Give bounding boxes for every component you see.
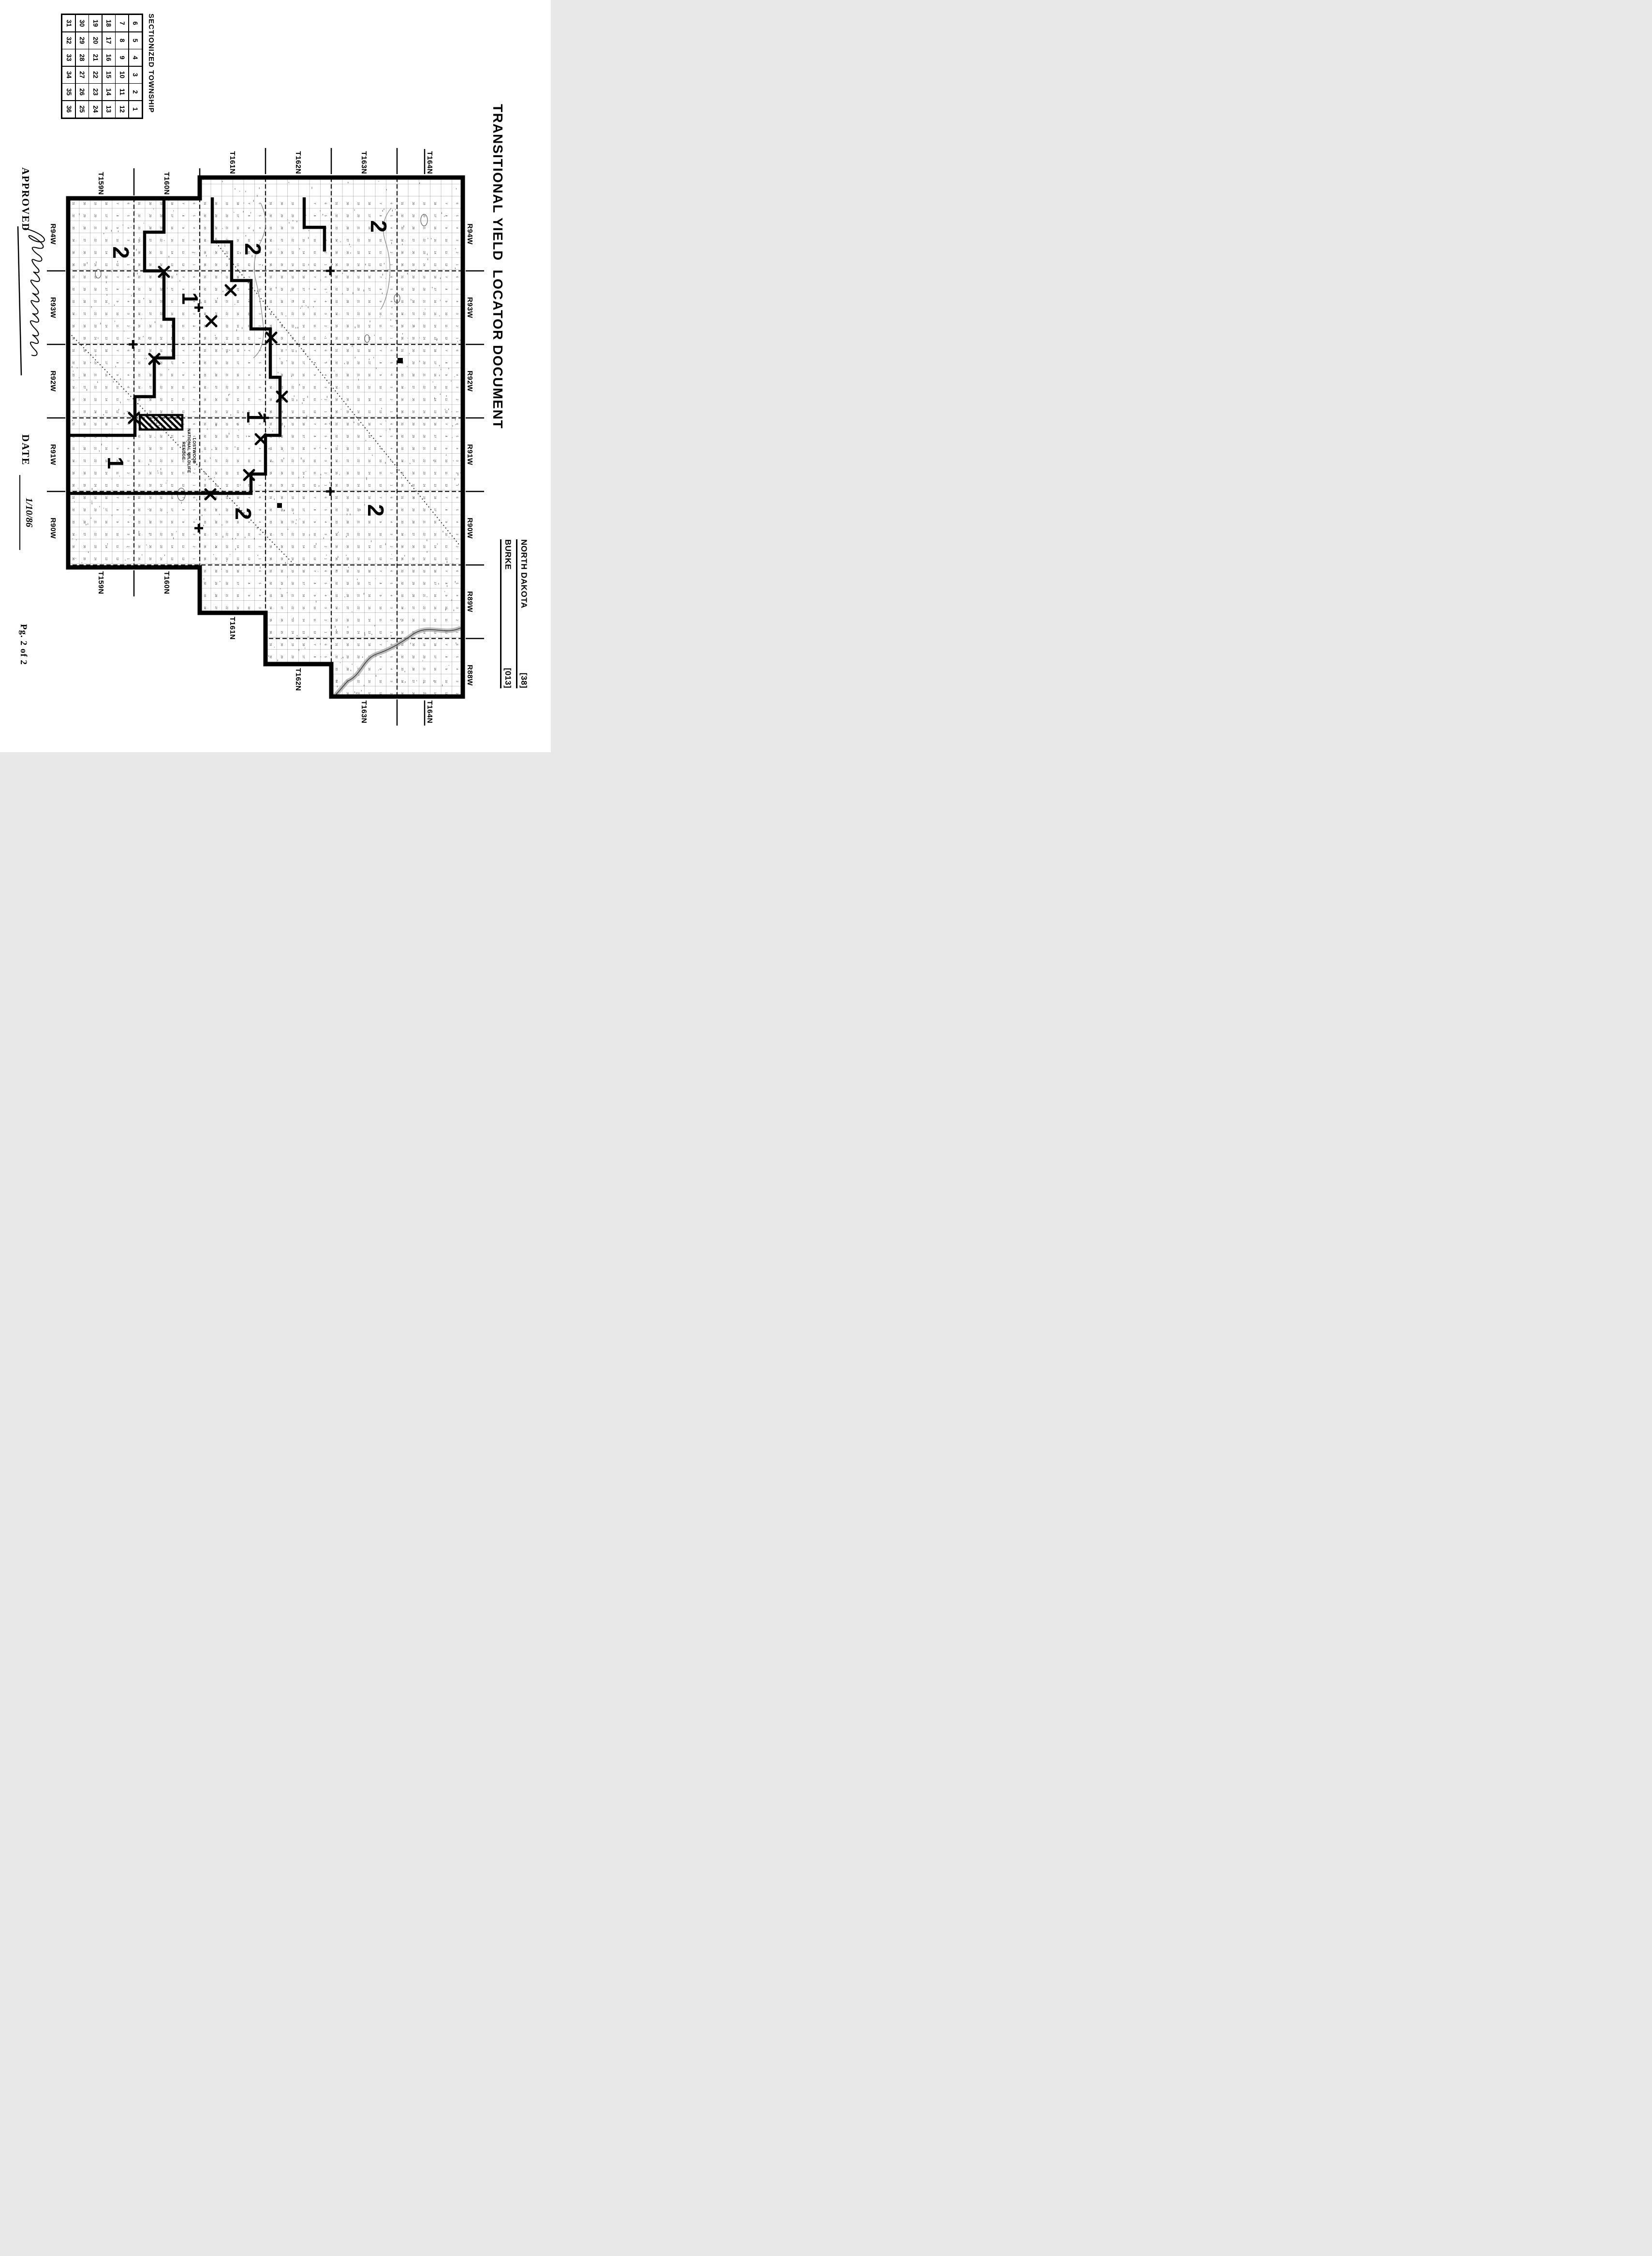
svg-text:31: 31 xyxy=(269,276,272,279)
svg-text:12: 12 xyxy=(379,263,382,266)
svg-text:36: 36 xyxy=(400,410,403,413)
svg-text:34: 34 xyxy=(335,386,338,389)
svg-text:20: 20 xyxy=(423,582,426,585)
svg-text:17: 17 xyxy=(302,435,305,438)
svg-text:27: 27 xyxy=(214,607,217,609)
svg-text:5: 5 xyxy=(127,288,130,290)
svg-text:17: 17 xyxy=(302,361,305,364)
svg-text:12: 12 xyxy=(181,337,184,340)
svg-text:28: 28 xyxy=(280,594,283,597)
svg-text:20: 20 xyxy=(225,582,228,585)
svg-text:16: 16 xyxy=(104,447,107,450)
svg-text:26: 26 xyxy=(346,251,349,254)
svg-text:32: 32 xyxy=(137,361,140,364)
svg-text:21: 21 xyxy=(423,668,426,670)
svg-text:30: 30 xyxy=(346,202,349,205)
svg-text:36: 36 xyxy=(269,410,272,413)
svg-text:4: 4 xyxy=(127,374,130,376)
svg-text:11: 11 xyxy=(444,398,447,401)
svg-text:21: 21 xyxy=(423,373,426,376)
svg-text:31: 31 xyxy=(269,202,272,205)
svg-text:4: 4 xyxy=(127,448,130,449)
svg-text:24: 24 xyxy=(225,263,228,266)
svg-text:18: 18 xyxy=(302,643,305,646)
svg-text:14: 14 xyxy=(433,472,436,475)
svg-text:8: 8 xyxy=(116,509,118,510)
svg-text:34: 34 xyxy=(72,312,74,315)
svg-text:17: 17 xyxy=(170,288,173,291)
svg-text:34: 34 xyxy=(269,386,272,389)
svg-text:5: 5 xyxy=(390,215,393,216)
svg-text:28: 28 xyxy=(148,520,151,523)
svg-text:1: 1 xyxy=(456,411,458,413)
svg-text:22: 22 xyxy=(357,533,360,536)
svg-text:27: 27 xyxy=(280,312,283,315)
svg-text:26: 26 xyxy=(214,251,217,254)
svg-text:6: 6 xyxy=(456,203,458,204)
svg-text:13: 13 xyxy=(433,337,436,340)
svg-text:22: 22 xyxy=(225,386,228,389)
svg-text:12: 12 xyxy=(379,410,382,413)
svg-text:27: 27 xyxy=(83,239,86,242)
svg-text:13: 13 xyxy=(302,484,305,487)
svg-text:23: 23 xyxy=(225,325,228,327)
svg-text:23: 23 xyxy=(94,251,97,254)
svg-text:27: 27 xyxy=(83,460,86,462)
svg-text:31: 31 xyxy=(203,349,206,352)
svg-text:18: 18 xyxy=(236,202,239,205)
svg-text:13: 13 xyxy=(433,410,436,413)
svg-text:20: 20 xyxy=(225,214,228,217)
township-label-right: T159N xyxy=(97,571,105,594)
svg-text:4: 4 xyxy=(324,301,327,302)
svg-text:25: 25 xyxy=(83,263,86,266)
svg-text:34: 34 xyxy=(269,533,272,536)
svg-text:35: 35 xyxy=(137,251,140,254)
svg-text:28: 28 xyxy=(83,300,86,303)
svg-text:22: 22 xyxy=(357,239,360,242)
svg-text:3: 3 xyxy=(324,460,327,461)
svg-text:11: 11 xyxy=(313,472,316,475)
svg-text:34: 34 xyxy=(400,312,403,315)
svg-text:24: 24 xyxy=(225,410,228,413)
svg-text:20: 20 xyxy=(291,582,294,585)
svg-text:14: 14 xyxy=(302,325,305,327)
svg-text:8: 8 xyxy=(313,215,316,216)
svg-text:2: 2 xyxy=(390,693,393,694)
svg-text:35: 35 xyxy=(400,619,403,622)
svg-text:14: 14 xyxy=(302,472,305,475)
svg-text:5: 5 xyxy=(258,509,261,510)
svg-text:12: 12 xyxy=(116,484,118,487)
svg-text:16: 16 xyxy=(104,300,107,303)
svg-text:35: 35 xyxy=(335,251,338,254)
svg-text:18: 18 xyxy=(302,496,305,499)
svg-text:10: 10 xyxy=(444,386,447,389)
svg-text:24: 24 xyxy=(160,484,162,487)
svg-text:34: 34 xyxy=(269,239,272,242)
svg-text:19: 19 xyxy=(423,496,426,499)
svg-text:1: 1 xyxy=(258,485,261,486)
range-label-bottom: R91W xyxy=(49,444,57,465)
svg-text:24: 24 xyxy=(357,631,360,634)
svg-text:25: 25 xyxy=(346,263,349,266)
svg-text:30: 30 xyxy=(83,349,86,352)
svg-text:7: 7 xyxy=(313,644,316,645)
svg-text:18: 18 xyxy=(170,276,173,279)
svg-text:7: 7 xyxy=(247,203,250,204)
svg-text:34: 34 xyxy=(72,239,74,242)
svg-text:15: 15 xyxy=(104,386,107,389)
svg-text:7: 7 xyxy=(379,276,382,278)
svg-text:18: 18 xyxy=(368,643,370,646)
svg-text:19: 19 xyxy=(357,349,360,352)
svg-text:24: 24 xyxy=(160,557,162,560)
svg-text:28: 28 xyxy=(412,594,414,597)
svg-text:33: 33 xyxy=(269,226,272,229)
svg-text:8: 8 xyxy=(181,362,184,363)
svg-text:30: 30 xyxy=(280,570,283,573)
svg-text:7: 7 xyxy=(247,276,250,278)
svg-text:16: 16 xyxy=(433,226,436,229)
svg-text:18: 18 xyxy=(104,202,107,205)
svg-text:6: 6 xyxy=(456,570,458,572)
svg-text:14: 14 xyxy=(368,472,370,475)
svg-text:7: 7 xyxy=(444,497,447,498)
svg-text:7: 7 xyxy=(379,350,382,351)
svg-text:17: 17 xyxy=(433,582,436,585)
svg-text:9: 9 xyxy=(313,448,316,449)
svg-text:32: 32 xyxy=(335,435,338,438)
svg-text:32: 32 xyxy=(203,508,206,511)
svg-text:6: 6 xyxy=(456,276,458,278)
svg-text:26: 26 xyxy=(412,398,414,401)
svg-text:19: 19 xyxy=(423,276,426,279)
svg-text:31: 31 xyxy=(335,570,338,573)
svg-text:16: 16 xyxy=(368,668,370,670)
svg-text:36: 36 xyxy=(335,263,338,266)
svg-text:15: 15 xyxy=(104,239,107,242)
svg-text:17: 17 xyxy=(104,214,107,217)
svg-text:5: 5 xyxy=(324,362,327,363)
svg-text:31: 31 xyxy=(335,643,338,646)
svg-text:9: 9 xyxy=(444,668,447,670)
svg-text:35: 35 xyxy=(72,251,74,254)
svg-text:15: 15 xyxy=(368,533,370,536)
svg-text:35: 35 xyxy=(269,251,272,254)
svg-text:2: 2 xyxy=(127,399,130,400)
svg-text:30: 30 xyxy=(412,276,414,279)
svg-text:12: 12 xyxy=(444,410,447,413)
svg-text:30: 30 xyxy=(412,496,414,499)
svg-text:16: 16 xyxy=(368,520,370,523)
svg-text:18: 18 xyxy=(302,276,305,279)
svg-text:9: 9 xyxy=(181,374,184,376)
svg-text:36: 36 xyxy=(269,263,272,266)
svg-text:14: 14 xyxy=(368,545,370,548)
svg-text:31: 31 xyxy=(72,423,74,426)
township-label-left: T162N xyxy=(294,151,302,174)
svg-text:12: 12 xyxy=(444,557,447,560)
svg-text:32: 32 xyxy=(335,214,338,217)
svg-text:25: 25 xyxy=(412,410,414,413)
svg-text:24: 24 xyxy=(357,484,360,487)
svg-text:5: 5 xyxy=(390,509,393,510)
svg-text:26: 26 xyxy=(148,545,151,548)
svg-text:21: 21 xyxy=(357,520,360,523)
svg-text:8: 8 xyxy=(116,215,118,216)
svg-text:23: 23 xyxy=(357,545,360,548)
svg-text:10: 10 xyxy=(181,386,184,389)
svg-text:9: 9 xyxy=(116,374,118,376)
svg-text:20: 20 xyxy=(291,508,294,511)
svg-text:5: 5 xyxy=(456,215,458,216)
svg-text:29: 29 xyxy=(214,361,217,364)
svg-text:13: 13 xyxy=(236,410,239,413)
svg-text:13: 13 xyxy=(236,263,239,266)
svg-text:19: 19 xyxy=(423,643,426,646)
svg-text:14: 14 xyxy=(368,619,370,622)
svg-text:9: 9 xyxy=(313,301,316,302)
svg-text:24: 24 xyxy=(160,337,162,340)
svg-text:25: 25 xyxy=(280,484,283,487)
svg-text:35: 35 xyxy=(269,619,272,622)
svg-text:7: 7 xyxy=(116,423,118,425)
svg-text:33: 33 xyxy=(203,447,206,450)
svg-text:19: 19 xyxy=(357,496,360,499)
svg-text:3: 3 xyxy=(456,460,458,461)
svg-text:27: 27 xyxy=(214,533,217,536)
svg-text:26: 26 xyxy=(412,619,414,622)
svg-text:10: 10 xyxy=(116,386,118,389)
svg-text:9: 9 xyxy=(313,374,316,376)
svg-text:7: 7 xyxy=(379,570,382,572)
svg-text:8: 8 xyxy=(116,362,118,363)
svg-text:5: 5 xyxy=(258,582,261,584)
svg-text:2: 2 xyxy=(324,399,327,400)
svg-text:12: 12 xyxy=(313,631,316,634)
svg-text:10: 10 xyxy=(181,312,184,315)
svg-text:13: 13 xyxy=(302,631,305,634)
svg-text:15: 15 xyxy=(236,386,239,389)
svg-text:23: 23 xyxy=(225,398,228,401)
svg-text:32: 32 xyxy=(400,582,403,585)
svg-text:4: 4 xyxy=(456,374,458,376)
svg-text:15: 15 xyxy=(433,239,436,242)
svg-text:2: 2 xyxy=(390,546,393,547)
svg-text:8: 8 xyxy=(247,215,250,216)
svg-text:19: 19 xyxy=(160,349,162,352)
svg-text:30: 30 xyxy=(346,276,349,279)
svg-text:29: 29 xyxy=(412,435,414,438)
svg-text:12: 12 xyxy=(444,484,447,487)
svg-text:21: 21 xyxy=(94,373,97,376)
svg-text:4: 4 xyxy=(258,448,261,449)
svg-text:26: 26 xyxy=(412,251,414,254)
svg-text:29: 29 xyxy=(346,582,349,585)
svg-text:13: 13 xyxy=(236,484,239,487)
svg-text:15: 15 xyxy=(302,312,305,315)
svg-text:11: 11 xyxy=(379,251,382,254)
svg-text:21: 21 xyxy=(291,226,294,229)
svg-text:25: 25 xyxy=(346,484,349,487)
svg-text:9: 9 xyxy=(313,521,316,523)
svg-text:28: 28 xyxy=(83,447,86,450)
svg-text:20: 20 xyxy=(423,655,426,658)
svg-text:22: 22 xyxy=(423,239,426,242)
svg-text:12: 12 xyxy=(116,557,118,560)
svg-text:17: 17 xyxy=(104,361,107,364)
svg-text:1: 1 xyxy=(192,264,195,266)
svg-text:33: 33 xyxy=(400,668,403,670)
svg-text:21: 21 xyxy=(94,300,97,303)
svg-text:33: 33 xyxy=(137,226,140,229)
svg-text:11: 11 xyxy=(444,251,447,254)
svg-text:36: 36 xyxy=(72,557,74,560)
svg-text:21: 21 xyxy=(423,447,426,450)
svg-text:4: 4 xyxy=(324,595,327,596)
svg-text:10: 10 xyxy=(247,386,250,389)
svg-text:9: 9 xyxy=(379,374,382,376)
svg-text:17: 17 xyxy=(368,214,370,217)
svg-text:17: 17 xyxy=(368,361,370,364)
svg-text:26: 26 xyxy=(280,545,283,548)
svg-text:32: 32 xyxy=(203,582,206,585)
svg-text:18: 18 xyxy=(302,570,305,573)
svg-text:5: 5 xyxy=(324,582,327,584)
svg-text:36: 36 xyxy=(203,337,206,340)
svg-text:2: 2 xyxy=(192,546,195,547)
svg-text:18: 18 xyxy=(170,202,173,205)
svg-text:5: 5 xyxy=(324,215,327,216)
svg-text:25: 25 xyxy=(148,410,151,413)
svg-text:30: 30 xyxy=(346,570,349,573)
svg-text:19: 19 xyxy=(423,423,426,426)
svg-text:6: 6 xyxy=(192,203,195,204)
svg-text:10: 10 xyxy=(313,607,316,609)
svg-text:35: 35 xyxy=(203,251,206,254)
svg-text:33: 33 xyxy=(400,226,403,229)
svg-text:20: 20 xyxy=(225,361,228,364)
svg-text:21: 21 xyxy=(160,300,162,303)
svg-text:5: 5 xyxy=(324,656,327,657)
svg-text:33: 33 xyxy=(203,300,206,303)
svg-text:1: 1 xyxy=(192,558,195,560)
svg-text:22: 22 xyxy=(423,386,426,389)
svg-text:24: 24 xyxy=(357,263,360,266)
svg-text:27: 27 xyxy=(83,386,86,389)
svg-text:35: 35 xyxy=(203,398,206,401)
svg-text:3: 3 xyxy=(192,313,195,314)
svg-text:15: 15 xyxy=(368,239,370,242)
yield-zone-number: 2 xyxy=(366,220,391,233)
svg-text:19: 19 xyxy=(423,349,426,352)
svg-text:25: 25 xyxy=(346,337,349,340)
svg-text:5: 5 xyxy=(192,288,195,290)
svg-text:35: 35 xyxy=(335,619,338,622)
svg-text:21: 21 xyxy=(160,226,162,229)
svg-text:4: 4 xyxy=(258,227,261,229)
svg-text:25: 25 xyxy=(346,557,349,560)
svg-text:6: 6 xyxy=(324,203,327,204)
svg-text:18: 18 xyxy=(368,276,370,279)
svg-text:8: 8 xyxy=(379,288,382,290)
svg-text:23: 23 xyxy=(423,251,426,254)
svg-text:31: 31 xyxy=(137,202,140,205)
svg-text:1: 1 xyxy=(192,485,195,486)
svg-text:34: 34 xyxy=(335,239,338,242)
svg-text:16: 16 xyxy=(170,520,173,523)
svg-text:16: 16 xyxy=(302,447,305,450)
svg-text:16: 16 xyxy=(302,594,305,597)
svg-text:7: 7 xyxy=(313,497,316,498)
svg-text:12: 12 xyxy=(313,263,316,266)
svg-text:23: 23 xyxy=(94,325,97,327)
svg-text:6: 6 xyxy=(192,497,195,498)
svg-text:12: 12 xyxy=(116,337,118,340)
svg-text:34: 34 xyxy=(335,533,338,536)
svg-text:7: 7 xyxy=(247,497,250,498)
svg-text:35: 35 xyxy=(400,545,403,548)
svg-text:30: 30 xyxy=(412,349,414,352)
svg-text:24: 24 xyxy=(291,263,294,266)
svg-text:34: 34 xyxy=(400,239,403,242)
svg-text:22: 22 xyxy=(94,386,97,389)
svg-text:9: 9 xyxy=(181,227,184,229)
svg-text:35: 35 xyxy=(269,545,272,548)
svg-text:25: 25 xyxy=(148,557,151,560)
svg-text:28: 28 xyxy=(412,447,414,450)
svg-text:28: 28 xyxy=(280,520,283,523)
svg-text:19: 19 xyxy=(357,643,360,646)
svg-text:13: 13 xyxy=(302,557,305,560)
svg-text:23: 23 xyxy=(94,472,97,475)
svg-text:16: 16 xyxy=(236,594,239,597)
svg-text:32: 32 xyxy=(335,288,338,291)
svg-text:1: 1 xyxy=(456,338,458,339)
svg-text:34: 34 xyxy=(203,533,206,536)
svg-text:14: 14 xyxy=(104,472,107,475)
svg-text:9: 9 xyxy=(444,521,447,523)
svg-text:16: 16 xyxy=(368,447,370,450)
svg-text:8: 8 xyxy=(379,215,382,216)
svg-text:28: 28 xyxy=(214,594,217,597)
svg-text:18: 18 xyxy=(368,202,370,205)
svg-text:12: 12 xyxy=(379,557,382,560)
svg-text:5: 5 xyxy=(127,509,130,510)
svg-text:27: 27 xyxy=(214,460,217,462)
svg-text:16: 16 xyxy=(236,520,239,523)
svg-text:22: 22 xyxy=(291,460,294,462)
svg-text:13: 13 xyxy=(433,263,436,266)
svg-text:4: 4 xyxy=(390,668,393,670)
range-label-bottom: R92W xyxy=(49,371,57,392)
svg-text:31: 31 xyxy=(400,276,403,279)
svg-text:15: 15 xyxy=(302,607,305,609)
svg-text:30: 30 xyxy=(148,276,151,279)
svg-text:16: 16 xyxy=(104,520,107,523)
svg-text:28: 28 xyxy=(214,300,217,303)
svg-text:33: 33 xyxy=(335,373,338,376)
svg-text:22: 22 xyxy=(225,460,228,462)
svg-text:32: 32 xyxy=(137,508,140,511)
svg-text:21: 21 xyxy=(357,373,360,376)
svg-text:23: 23 xyxy=(423,619,426,622)
svg-text:12: 12 xyxy=(313,557,316,560)
svg-text:10: 10 xyxy=(313,312,316,315)
svg-text:13: 13 xyxy=(433,557,436,560)
svg-text:17: 17 xyxy=(368,435,370,438)
